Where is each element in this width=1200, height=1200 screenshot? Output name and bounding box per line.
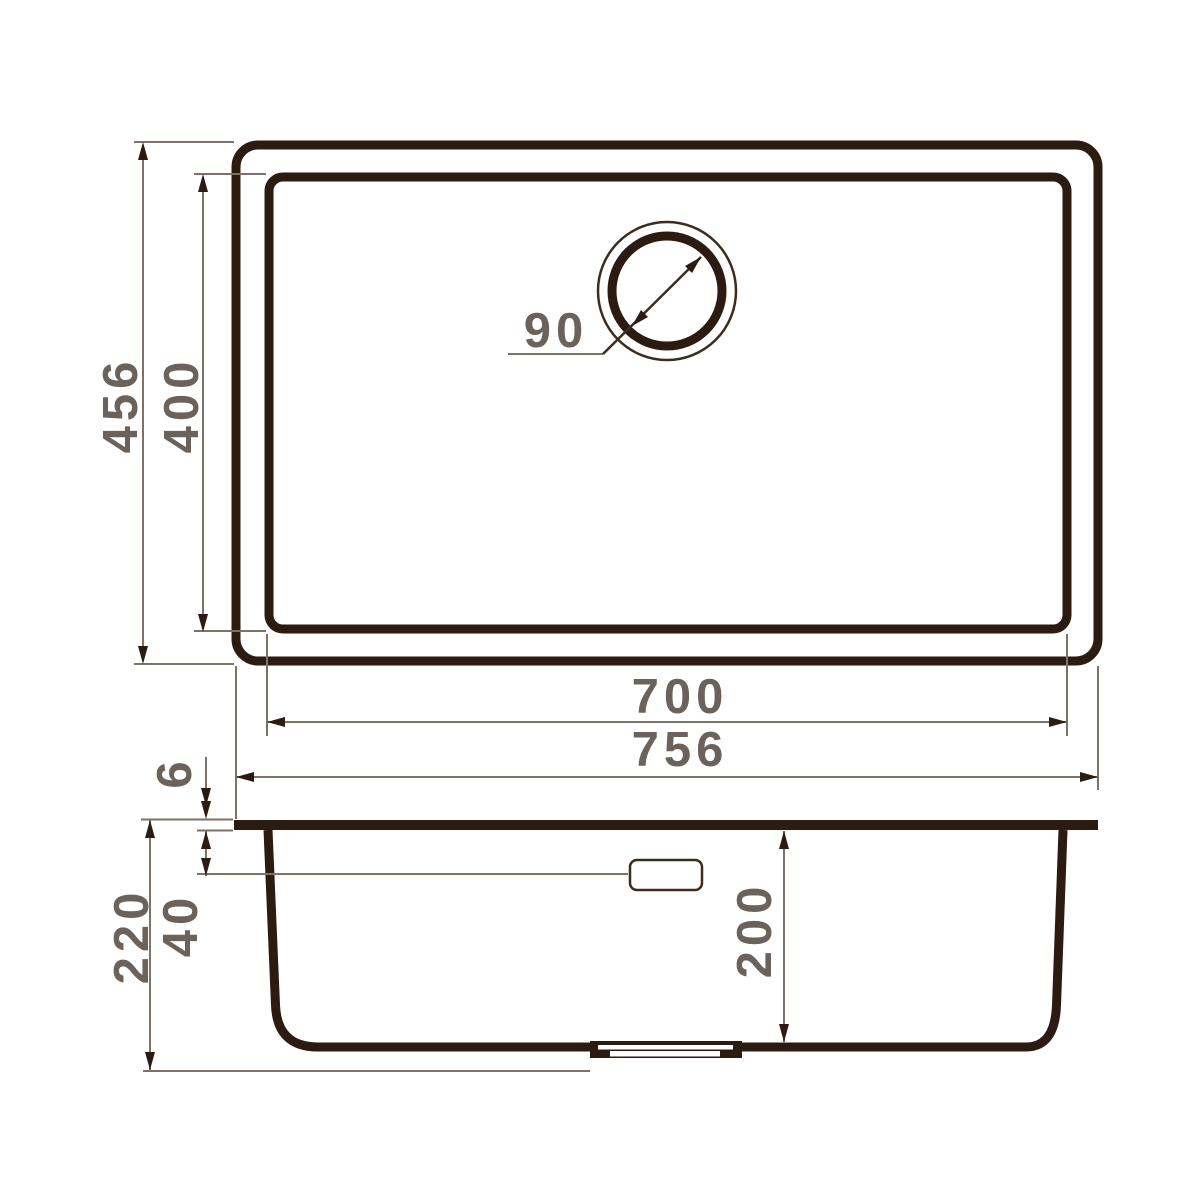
side-view-rim: [234, 820, 1098, 830]
label-inner-width: 700: [632, 670, 729, 724]
label-total-height: 220: [105, 888, 159, 985]
dim-200-arrow-top: [779, 831, 789, 849]
dim-700-arrow-right: [1049, 717, 1067, 727]
label-inner-depth: 400: [155, 357, 209, 454]
side-view-drain-slot-lower: [610, 1051, 720, 1057]
label-rim-thickness: 6: [148, 761, 202, 788]
label-overflow-depth: 40: [154, 893, 208, 958]
dim-40-arrow-top: [201, 831, 211, 849]
side-view: 6 40 220 200: [105, 757, 1098, 1071]
label-bowl-depth: 200: [728, 882, 782, 979]
label-drain-diameter: 90: [524, 304, 589, 358]
dim-456-arrow-top: [138, 142, 148, 160]
dim-400-arrow-top: [198, 174, 208, 192]
dim-220-arrow-top: [145, 820, 155, 838]
side-view-overflow-opening: [630, 860, 702, 890]
top-view-inner-rect: [269, 177, 1067, 629]
dim-6-arrow-lower: [201, 801, 211, 819]
dim-756-arrow-left: [236, 772, 254, 782]
side-view-bowl-outline: [268, 830, 1063, 1047]
sink-technical-drawing: 90 456 400 700 756: [0, 0, 1200, 1200]
top-view: 90 456 400 700 756: [94, 142, 1098, 819]
dim-200-arrow-bottom: [779, 1024, 789, 1042]
label-outer-depth: 456: [94, 357, 148, 454]
dim-400-arrow-bottom: [198, 614, 208, 632]
side-view-drain-slot-upper: [598, 1045, 733, 1050]
dim-456-arrow-bottom: [138, 646, 148, 664]
drawing-svg: 90 456 400 700 756: [0, 0, 1200, 1200]
label-outer-width: 756: [632, 723, 729, 777]
dim-756-arrow-right: [1080, 772, 1098, 782]
dim-700-arrow-left: [267, 717, 285, 727]
dim-220-arrow-bottom: [145, 1052, 155, 1070]
